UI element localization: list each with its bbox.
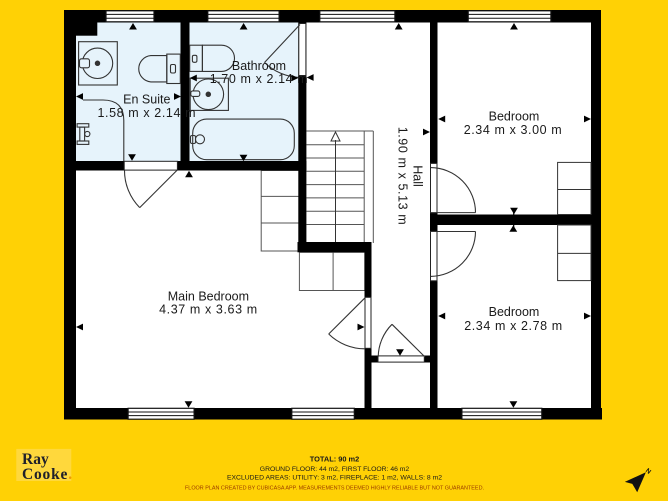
svg-text:En Suite: En Suite	[123, 93, 170, 107]
svg-text:Bedroom: Bedroom	[489, 110, 540, 124]
svg-text:FLOOR PLAN CREATED BY CUBICASA: FLOOR PLAN CREATED BY CUBICASA APP. MEAS…	[185, 486, 485, 492]
svg-text:Bedroom: Bedroom	[489, 305, 540, 319]
svg-text:Hall: Hall	[411, 165, 425, 187]
svg-text:Cooke.: Cooke.	[22, 466, 73, 483]
svg-text:Bathroom: Bathroom	[232, 59, 286, 73]
svg-text:4.37 m x 3.63 m: 4.37 m x 3.63 m	[159, 303, 258, 317]
svg-text:GROUND FLOOR: 44 m2, FIRST FLO: GROUND FLOOR: 44 m2, FIRST FLOOR: 46 m2	[260, 466, 410, 473]
svg-text:TOTAL: 90 m2: TOTAL: 90 m2	[310, 454, 359, 463]
svg-text:1.58 m x 2.14 m: 1.58 m x 2.14 m	[97, 106, 196, 120]
svg-text:2.34 m x 2.78 m: 2.34 m x 2.78 m	[464, 319, 563, 333]
svg-text:Main Bedroom: Main Bedroom	[168, 290, 249, 304]
svg-text:2.34 m x 3.00 m: 2.34 m x 3.00 m	[464, 123, 563, 137]
svg-text:1.70 m x 2.14 m: 1.70 m x 2.14 m	[210, 72, 309, 86]
svg-text:1.90 m x 5.13 m: 1.90 m x 5.13 m	[396, 127, 410, 226]
svg-text:EXCLUDED AREAS: UTILITY: 3 m2,: EXCLUDED AREAS: UTILITY: 3 m2, FIREPLACE…	[227, 475, 442, 482]
